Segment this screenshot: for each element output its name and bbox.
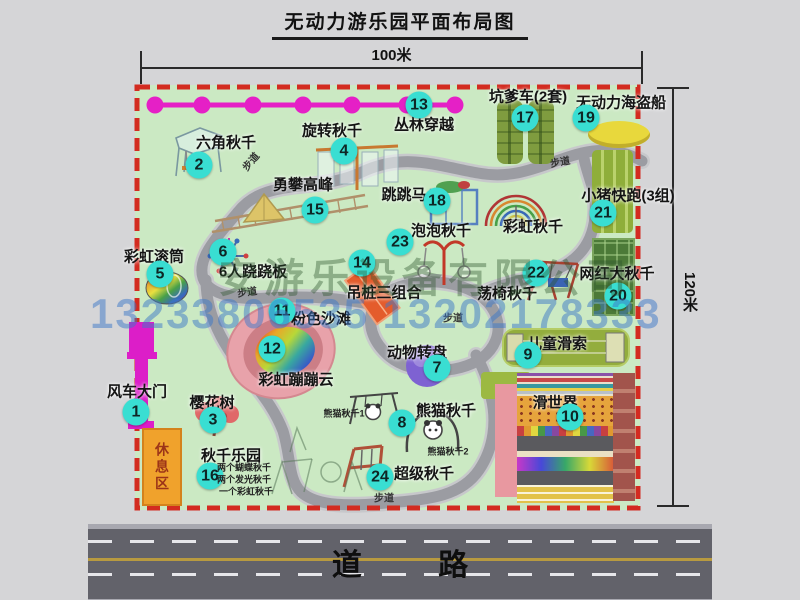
attraction-label-17: 坑爹车(2套) xyxy=(489,86,567,107)
note-label-0: 熊猫秋千1 xyxy=(323,407,364,420)
attraction-label-23: 泡泡秋千 xyxy=(411,220,471,241)
attraction-label-24: 超级秋千 xyxy=(394,463,454,484)
walkway-label-2: 步道 xyxy=(236,282,258,300)
attraction-badge-18: 18 xyxy=(424,188,451,215)
walkway-label-4: 步道 xyxy=(374,490,394,505)
attraction-badge-9: 9 xyxy=(515,342,542,369)
attraction-label-11: 粉色沙滩 xyxy=(291,308,351,329)
park-layout-poster: 无动力游乐园平面布局图 100米 120米 xyxy=(0,0,800,600)
attraction-badge-11: 11 xyxy=(269,298,296,325)
attraction-badge-2: 2 xyxy=(186,152,213,179)
attraction-label-2: 六角秋千 xyxy=(196,132,256,153)
note-label-4: 一个彩虹秋千 xyxy=(219,485,273,498)
attraction-badge-14: 14 xyxy=(349,250,376,277)
attraction-label-8: 熊猫秋千 xyxy=(416,400,476,421)
attraction-badge-4: 4 xyxy=(331,138,358,165)
page-title: 无动力游乐园平面布局图 xyxy=(272,7,527,40)
walkway-label-3: 步道 xyxy=(443,310,463,325)
attraction-badge-19: 19 xyxy=(573,105,600,132)
attraction-badge-8: 8 xyxy=(389,410,416,437)
attraction-badge-20: 20 xyxy=(605,283,632,310)
attraction-badge-23: 23 xyxy=(387,229,414,256)
attraction-badge-24: 24 xyxy=(367,464,394,491)
attraction-badge-10: 10 xyxy=(557,404,584,431)
attraction-badge-12: 12 xyxy=(259,336,286,363)
attraction-label-20: 网红大秋千 xyxy=(579,263,654,284)
attraction-label-12: 彩虹蹦蹦云 xyxy=(258,369,333,390)
attraction-badge-5: 5 xyxy=(147,261,174,288)
attraction-badge-21: 21 xyxy=(590,200,617,227)
attraction-label-18: 跳跳马 xyxy=(381,184,426,205)
attraction-badge-1: 1 xyxy=(123,399,150,426)
attraction-badge-13: 13 xyxy=(406,92,433,119)
attraction-badge-3: 3 xyxy=(200,407,227,434)
title-wrap: 无动力游乐园平面布局图 xyxy=(0,7,800,40)
attraction-badge-22: 22 xyxy=(523,260,550,287)
attraction-label-22: 荡椅秋千 xyxy=(477,283,537,304)
attraction-badge-15: 15 xyxy=(302,197,329,224)
attraction-label-14: 吊桩三组合 xyxy=(346,282,421,303)
walkway-label-1: 步道 xyxy=(549,152,571,170)
attraction-badge-7: 7 xyxy=(424,355,451,382)
attraction-label-4: 旋转秋千 xyxy=(302,120,362,141)
marker-layer: 风车大门1六角秋千2樱花树3旋转秋千4彩虹滚筒56人跷跷板6动物转盘7熊猫秋千8… xyxy=(0,0,800,600)
note-label-1: 熊猫秋千2 xyxy=(427,445,468,458)
attraction-label-彩虹秋千: 彩虹秋千 xyxy=(503,216,563,237)
attraction-badge-6: 6 xyxy=(210,239,237,266)
attraction-label-15: 勇攀高峰 xyxy=(273,174,333,195)
attraction-badge-17: 17 xyxy=(512,105,539,132)
